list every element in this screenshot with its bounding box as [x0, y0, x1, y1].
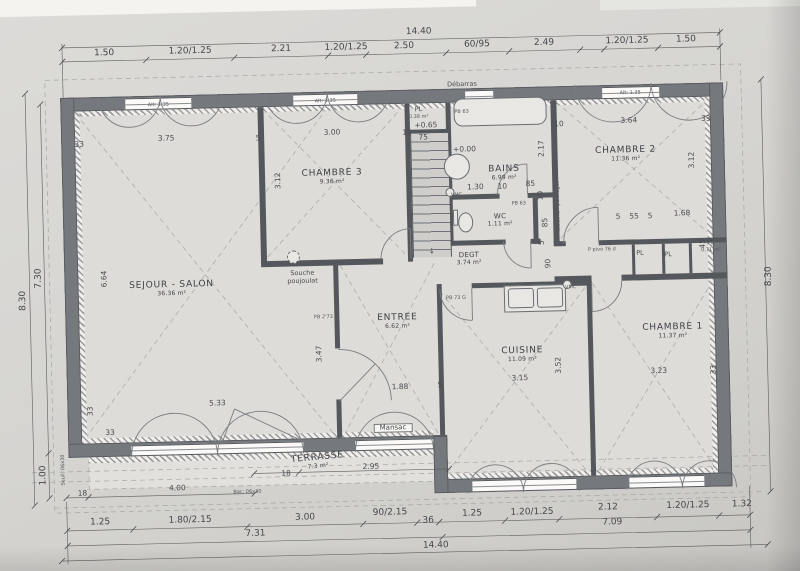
- annotation-label: PL: [707, 239, 715, 246]
- dimension-label: 1.00: [39, 465, 49, 485]
- dimension-label: 33: [74, 140, 84, 148]
- annotation-label-text: PL: [707, 238, 715, 246]
- dimension-label-text: 55: [629, 211, 639, 220]
- dimension-label-text: 3.52: [553, 357, 562, 374]
- dimension-label: 33: [105, 429, 115, 437]
- annotation-label-text: Bac: 06x30: [233, 489, 261, 496]
- dimension-label-text: 33: [74, 139, 84, 148]
- annotation-label: Seuil: 06x30: [61, 454, 67, 485]
- dimension-label-text: +0.65: [414, 120, 437, 130]
- dimension-label-text: 5: [616, 212, 621, 221]
- annotation-label-text: Débarras: [447, 80, 477, 89]
- dimension-label-text: 8.30: [18, 291, 28, 311]
- dimension-label-text: 3.47: [314, 345, 323, 362]
- annotation-label-text: PL: [664, 250, 672, 258]
- dimension-label-text: 5: [438, 380, 443, 389]
- dimension-label-text: 1.20/1.25: [605, 35, 648, 46]
- dimension-label: 1.88: [392, 383, 409, 391]
- dimension-label-text: 2.95: [362, 462, 379, 471]
- dimension-label: 10: [497, 183, 507, 191]
- dimension-label: 1.80/2.15: [168, 516, 211, 526]
- dimension-label: 5: [538, 240, 546, 245]
- dimension-label: 7.09: [602, 518, 622, 528]
- annotation-label-text: 0.71 m²: [701, 247, 721, 253]
- dimension-label-text: 1.50: [676, 34, 696, 44]
- dimension-label: 3.64: [620, 116, 637, 124]
- dimension-label: 2.12: [598, 503, 618, 513]
- window-opening: [629, 475, 704, 489]
- floor-plan-drawing: SEJOUR - SALON36.36 m²CHAMBRE 39.36 m²BA…: [0, 0, 800, 571]
- stair-direction-arrow-text: ↓: [429, 246, 436, 255]
- dimension-label-text: 7.31: [245, 529, 265, 539]
- dimension-label: 14.40: [423, 541, 449, 551]
- dimension-label: 8.30: [765, 266, 775, 286]
- dimension-label-text: 85: [525, 179, 535, 188]
- annotation-label: VMC: [451, 193, 462, 199]
- dimension-label-text: 1.20/1.25: [168, 46, 211, 57]
- dimension-label-text: 3.64: [620, 115, 637, 124]
- dimension-label-text: 90: [543, 259, 552, 269]
- dimension-label: 36: [422, 517, 434, 527]
- dimension-label: 90: [544, 259, 552, 269]
- dimension-label-text: 18: [281, 469, 291, 478]
- dimension-label-text: 1.50: [94, 48, 114, 58]
- dimension-label: 5: [648, 212, 653, 220]
- room-label-degt-text: DEGT: [459, 251, 480, 259]
- dimension-label: 2.21: [271, 45, 291, 55]
- dimension-label: 3.12: [274, 172, 282, 189]
- dimension-label-text: 75: [418, 132, 428, 141]
- dimension-label: 2.95: [362, 463, 379, 471]
- dimension-label-text: 33: [105, 428, 115, 437]
- door-brand-label-text: Mansac: [380, 423, 407, 432]
- dimension-label-text: 1.68: [674, 208, 691, 217]
- annotation-label-text: poujoulat: [287, 277, 318, 286]
- dimension-label: 4.00: [169, 484, 186, 492]
- dimension-label: 6.64: [100, 271, 108, 288]
- dimension-label-text: 1.80/2.15: [168, 515, 211, 526]
- dimension-label-text: 5: [537, 240, 546, 245]
- dimension-label-text: 2.21: [271, 44, 291, 54]
- room-label-wc-text: WC: [494, 212, 507, 220]
- room-area-label: 11.09 m²: [501, 357, 543, 364]
- dimension-label-text: 3.00: [324, 127, 341, 136]
- room-label-sejour-salon: SEJOUR - SALON36.36 m²: [129, 280, 214, 299]
- dimension-label-text: 60/95: [464, 39, 490, 50]
- room-label-chambre-3: CHAMBRE 39.36 m²: [301, 168, 362, 186]
- dimension-label-text: 1.25: [90, 517, 110, 527]
- annotation-label: Alt: 1.35: [148, 103, 169, 109]
- dimension-label-text: 90/2.15: [373, 507, 408, 518]
- dimension-label: 2.50: [394, 42, 414, 52]
- room-label-chambre-1-text: CHAMBRE 1: [642, 321, 703, 332]
- dimension-label: 7.31: [245, 530, 265, 540]
- annotation-label: poujoulat: [287, 278, 318, 286]
- kitchen-sink-basin: [508, 288, 534, 309]
- dimension-label: 5: [616, 213, 621, 221]
- dimension-label: 3.52: [554, 357, 562, 374]
- room-label-chambre-3-text: CHAMBRE 3: [301, 167, 362, 178]
- dimension-label-text: 3.15: [511, 373, 528, 382]
- dimension-label-text: 1.00: [38, 465, 48, 485]
- annotation-label-text: PL: [415, 105, 423, 113]
- dimension-label: 85: [541, 218, 549, 228]
- wall-segment: [336, 399, 342, 437]
- dimension-label: 55: [629, 212, 639, 220]
- dimension-label: 18: [281, 470, 291, 478]
- dimension-label: 33: [86, 406, 94, 416]
- dimension-label: 3.47: [315, 345, 323, 362]
- dimension-label: +0.65: [414, 121, 437, 129]
- annotation-label: PL: [636, 250, 644, 257]
- annotation-label-text: Cloisons hydrofuges: [555, 181, 562, 232]
- room-label-bains: BAINS6.99 m²: [488, 165, 520, 182]
- dimension-label: 10: [402, 129, 412, 137]
- annotation-label: Bac: 06x30: [233, 490, 261, 496]
- dimension-label: 1.20/1.25: [324, 43, 367, 53]
- annotation-label: PL: [664, 251, 672, 258]
- dimension-label-text: 1.25: [462, 508, 482, 518]
- dimension-label: +0.00: [453, 145, 476, 153]
- room-label-bains-text: BAINS: [488, 164, 520, 175]
- wall-segment: [554, 241, 566, 246]
- dimension-label: 33: [710, 365, 718, 375]
- dimension-label: 10: [554, 120, 564, 128]
- dimension-label: 14.40: [406, 27, 432, 37]
- dimension-label-text: 1.32: [732, 499, 752, 509]
- dimension-label-text: 33: [709, 365, 718, 375]
- dimension-label-text: 6.64: [99, 271, 108, 288]
- stair-direction-arrow: ↓: [429, 247, 435, 255]
- annotation-label: PB 73 G: [446, 296, 466, 302]
- dimension-label-text: 1.30: [467, 182, 484, 191]
- dimension-label-text: 1.20/1.25: [324, 42, 367, 53]
- dimension-label: 90/2.15: [373, 508, 408, 518]
- annotation-label-text: Alt: 1.35: [148, 102, 169, 108]
- dimension-label: 60/95: [464, 40, 490, 50]
- dimension-label: 3.15: [511, 374, 528, 382]
- dimension-label-text: 5.33: [209, 398, 226, 407]
- dimension-label-text: 7.30: [33, 268, 43, 288]
- dimension-label: 85: [525, 180, 535, 188]
- dimension-label-text: 3.23: [650, 366, 667, 375]
- door-brand-label: Mansac: [374, 423, 413, 433]
- annotation-label-text: PB 2'73: [314, 314, 333, 320]
- dimension-label-text: 10: [402, 128, 412, 137]
- dimension-label: 3.00: [324, 128, 341, 136]
- dimension-label: 1.32: [732, 500, 752, 510]
- annotation-label-text: PB 63: [511, 200, 526, 206]
- dimension-label-text: 10: [554, 119, 564, 128]
- room-label-sejour-salon-text: SEJOUR - SALON: [129, 279, 214, 291]
- dimension-label: 5.33: [209, 399, 226, 407]
- room-area-label: 3.74 m²: [457, 260, 482, 267]
- annotation-label: 0.71 m²: [701, 248, 721, 254]
- dimension-label: 1.20/1.25: [510, 508, 553, 518]
- room-label-cuisine: CUISINE11.09 m²: [501, 346, 543, 364]
- annotation-label: 0.38 m²: [409, 115, 429, 121]
- dimension-label-text: 2.12: [598, 502, 618, 512]
- annotation-label-text: PB 63: [454, 109, 469, 115]
- dimension-label: 2.17: [537, 140, 545, 157]
- dimension-label: 2.49: [534, 39, 554, 49]
- kitchen-sink-basin: [537, 287, 563, 308]
- annotation-label: PB 63: [512, 201, 527, 207]
- annotation-label: VMC: [565, 285, 576, 291]
- dimension-label-text: 1.88: [392, 382, 409, 391]
- wall-segment: [533, 198, 539, 244]
- dimension-label: 1.20/1.25: [666, 501, 709, 511]
- window-opening: [355, 438, 433, 451]
- annotation-label-text: PB 73 G: [446, 295, 466, 301]
- dimension-label-text: 3.75: [158, 133, 175, 142]
- room-label-chambre-1: CHAMBRE 111.37 m²: [642, 322, 703, 340]
- room-label-chambre-2-text: CHAMBRE 2: [595, 145, 656, 156]
- dimension-label-text: 2.50: [394, 41, 414, 51]
- dimension-label: 1.50: [676, 35, 696, 45]
- dimension-label-text: 2.49: [534, 38, 554, 48]
- dimension-label: 5: [256, 134, 261, 142]
- dimension-label-text: 14.40: [406, 26, 432, 37]
- dimension-label-text: 14.40: [423, 540, 449, 551]
- dimension-label: 1.25: [462, 509, 482, 519]
- dimension-label-text: 18: [78, 488, 88, 497]
- plan-labels: SEJOUR - SALON36.36 m²CHAMBRE 39.36 m²BA…: [0, 0, 793, 10]
- annotation-label-text: VMC: [565, 284, 576, 290]
- dimension-label: 8.30: [19, 291, 29, 311]
- room-label-cuisine-text: CUISINE: [501, 345, 543, 356]
- dimension-label-text: 5: [256, 133, 261, 142]
- dimension-label-text: 8.30: [764, 266, 774, 286]
- dimension-label: 33: [701, 115, 711, 123]
- annotation-label-text: Seuil: 06x30: [60, 454, 67, 485]
- wall-segment: [433, 436, 448, 493]
- dimension-label: 3.23: [650, 367, 667, 375]
- dimension-label-text: 33: [85, 406, 94, 416]
- annotation-label-text: VMC: [451, 192, 462, 198]
- dimension-label: 1.50: [94, 49, 114, 59]
- dimension-label: 1.20/1.25: [168, 47, 211, 57]
- dimension-label: 1.30: [467, 183, 484, 191]
- dimension-label: 75: [418, 133, 428, 141]
- annotation-label-text: PL: [636, 249, 644, 257]
- dimension-label-text: 5: [648, 211, 653, 220]
- annotation-label: P pivo 76 d: [588, 247, 616, 253]
- window-opening: [472, 478, 576, 492]
- dimension-label: 18: [78, 489, 88, 497]
- room-label-degt: DEGT3.74 m²: [456, 252, 481, 267]
- room-label-entree: ENTREE6.62 m²: [377, 313, 418, 331]
- dimension-label-text: 1.20/1.25: [510, 507, 553, 518]
- dimension-label-text: 36: [422, 516, 434, 526]
- dimension-label-text: 33: [701, 114, 711, 123]
- room-label-entree-text: ENTREE: [377, 312, 418, 323]
- annotation-label: PL: [415, 106, 423, 113]
- dimension-label: 7.30: [34, 268, 44, 288]
- dimension-label: 3.12: [688, 152, 696, 169]
- room-area-label: 1.11 m²: [488, 221, 513, 228]
- annotation-label-text: Alt: 1.35: [315, 98, 336, 104]
- room-label-chambre-2: CHAMBRE 211.36 m²: [595, 146, 656, 164]
- dimension-label-text: 1.20/1.25: [666, 500, 709, 511]
- dimension-label-text: 3.12: [687, 152, 696, 169]
- dimension-label-text: 4.00: [169, 483, 186, 492]
- dimension-label-text: 85: [540, 218, 549, 228]
- room-area-label: 6.62 m²: [377, 324, 417, 331]
- dimension-label-text: +0.00: [453, 144, 476, 154]
- annotation-label: Débarras: [447, 81, 477, 89]
- dimension-label: 5: [438, 381, 443, 389]
- annotation-label: PB 2'73: [314, 315, 333, 321]
- room-label-wc: WC1.11 m²: [488, 213, 513, 228]
- dimension-label: 1.20/1.25: [605, 36, 648, 46]
- annotation-label-text: 0.38 m²: [409, 114, 429, 120]
- annotation-label: Alt: 1.35: [315, 99, 336, 105]
- dimension-label: 3.00: [295, 513, 315, 523]
- dimension-label-text: 10: [536, 191, 545, 201]
- dimension-label-text: 3.12: [273, 172, 282, 189]
- dimension-label: 1.25: [90, 518, 110, 528]
- dimension-label-text: 3.00: [295, 512, 315, 522]
- dimension-label: 3.75: [158, 134, 175, 142]
- annotation-label: Alt: 1.35: [620, 91, 641, 97]
- annotation-label-text: P pivo 76 d: [588, 246, 616, 253]
- dimension-label-text: 7.09: [602, 517, 622, 527]
- annotation-label-text: Alt: 1.35: [620, 90, 641, 96]
- dimension-label-text: 2.17: [536, 140, 545, 157]
- dimension-label: 1.68: [674, 209, 691, 217]
- floor-plan-photo: SEJOUR - SALON36.36 m²CHAMBRE 39.36 m²BA…: [0, 0, 800, 571]
- dimension-label: 10: [537, 191, 545, 201]
- annotation-label: PB 63: [454, 110, 469, 116]
- dimension-label-text: 10: [497, 182, 507, 191]
